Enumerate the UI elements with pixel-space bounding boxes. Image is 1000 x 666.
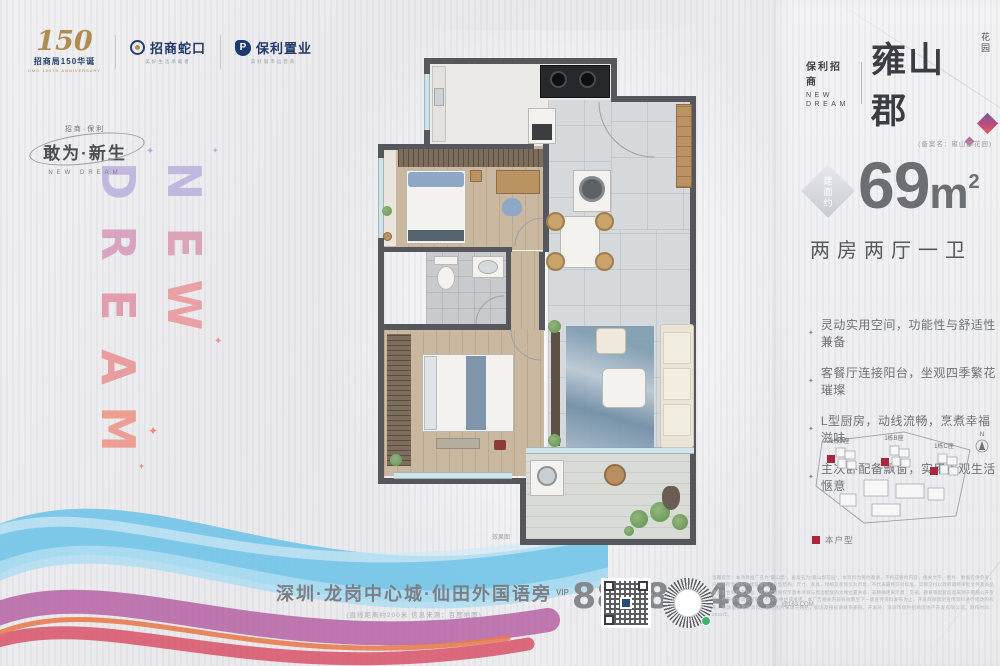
- legal-fine-print: 温馨提示：本项目推广名为“雍山郡”，备案名为“雍山郡花园”。本资料为要约邀请，不…: [712, 574, 994, 619]
- highlighted-unit: [827, 455, 835, 463]
- brand-tagline-text: 敢为·新生: [43, 144, 127, 163]
- project-brand-en: NEW DREAM: [806, 91, 852, 109]
- cmsk-slogan: 美好生活承载者: [145, 59, 191, 65]
- feature-item: ✦客餐厅连接阳台，坐观四季繁花璀璨: [808, 364, 1000, 398]
- qr-finder-icon: [604, 615, 614, 625]
- sparkle-icon: ✦: [214, 336, 222, 347]
- wechat-dot-icon: [701, 616, 711, 626]
- poster-canvas: 150 招商局150华诞 CMG 150TH ANNIVERSARY 招商蛇口 …: [0, 0, 1000, 666]
- unit-area-block: 建面约 69m2 两房两厅一卫: [806, 152, 996, 263]
- address-text: 深圳·龙岗中心城·仙田外国语旁: [276, 580, 552, 606]
- watermark-letter: A: [87, 341, 149, 393]
- qr-finder-icon: [638, 581, 648, 591]
- area-badge-label: 建面约: [806, 166, 850, 218]
- watermark-letter: M: [87, 403, 149, 455]
- project-filing-name: (备案名：雍山郡花园): [806, 138, 992, 148]
- area-badge: 建面约: [806, 160, 850, 224]
- unit-rooms-label: 两房两厅一卫: [810, 234, 996, 263]
- logo-divider: [115, 35, 116, 69]
- area-exponent: 2: [969, 171, 980, 193]
- logo-divider: [220, 35, 221, 69]
- anniversary-subtitle: CMG 150TH ANNIVERSARY: [28, 68, 101, 73]
- sparkle-icon: ✦: [146, 146, 154, 157]
- floor-plan: [378, 58, 700, 550]
- header-logos: 150 招商局150华诞 CMG 150TH ANNIVERSARY 招商蛇口 …: [28, 30, 312, 73]
- siteplan-legend: 本户型: [812, 534, 854, 546]
- qr-finder-icon: [604, 581, 614, 591]
- building-label: 1栋B座: [884, 434, 903, 442]
- area-value: 69: [858, 148, 929, 222]
- project-brand: 保利招商: [806, 58, 852, 88]
- brand-en-line: NEW: [806, 91, 852, 100]
- qr-center-badge: [674, 589, 702, 617]
- watermark-letter: R: [87, 217, 149, 269]
- watermark-letter: E: [153, 217, 215, 269]
- qr-code-square: [601, 578, 651, 628]
- highlighted-unit: [930, 467, 938, 475]
- watermark-new: N E W: [158, 150, 210, 336]
- project-divider: [861, 62, 862, 104]
- address-note: (直线距离约200米 信息来源：百度地图): [276, 609, 552, 619]
- sparkle-icon: ✦: [138, 462, 145, 471]
- anniversary-title: 招商局150华诞: [34, 56, 95, 67]
- anniversary-150-icon: 150: [36, 30, 92, 54]
- project-brand-block: 保利招商 NEW DREAM: [806, 58, 852, 109]
- area-unit: m: [929, 169, 968, 218]
- brand-tagline-en: NEW DREAM: [30, 170, 140, 176]
- building-label: 1栋C座: [934, 442, 954, 450]
- vip-label: VIP: [556, 588, 569, 597]
- poly-logo: P 保利置业 美好城市运营商: [235, 38, 312, 65]
- north-label: N: [980, 431, 985, 438]
- sparkle-icon: ✦: [212, 146, 219, 155]
- watermark-dream: D R E A M: [92, 150, 144, 460]
- qr-code-round: [663, 578, 713, 628]
- poly-p-icon: P: [235, 40, 251, 56]
- poly-name: 保利置业: [256, 38, 312, 57]
- project-header: 保利招商 NEW DREAM 雍山郡 花园 (备案名：雍山郡花园): [806, 32, 992, 148]
- brand-tagline-block: 招商·保利 敢为·新生 NEW DREAM: [30, 124, 140, 176]
- watermark-letter: W: [153, 279, 215, 331]
- floorplan-caption: 效果图: [476, 532, 526, 541]
- feature-text: 灵动实用空间，功能性与舒适性兼备: [821, 316, 1000, 350]
- highlighted-unit: [881, 458, 889, 466]
- brand-en-line: DREAM: [806, 100, 852, 109]
- legend-label: 本户型: [825, 534, 854, 546]
- brand-tagline-small: 招商·保利: [30, 124, 140, 134]
- diamond-bullet-icon: ✦: [808, 377, 814, 385]
- cmsk-name: 招商蛇口: [150, 38, 206, 57]
- watermark-letter: E: [87, 279, 149, 331]
- watermark-letter: N: [153, 155, 215, 207]
- site-plan: 1栋A座 1栋B座 1栋C座 N: [806, 424, 994, 534]
- door-swing-arcs: [378, 58, 700, 550]
- cmsk-ring-icon: [130, 40, 145, 55]
- project-name-suffix: 花园: [979, 32, 992, 54]
- legend-swatch: [812, 536, 820, 544]
- address-block: 深圳·龙岗中心城·仙田外国语旁 (直线距离约200米 信息来源：百度地图): [276, 580, 552, 619]
- cmsk-logo: 招商蛇口 美好生活承载者: [130, 38, 206, 65]
- building-label: 1栋A座: [830, 437, 849, 445]
- anniversary-logo: 150 招商局150华诞 CMG 150TH ANNIVERSARY: [28, 30, 101, 73]
- poly-slogan: 美好城市运营商: [251, 59, 297, 65]
- north-compass-icon: N: [976, 431, 988, 452]
- feature-text: 客餐厅连接阳台，坐观四季繁花璀璨: [821, 364, 1000, 398]
- project-name: 雍山郡: [871, 32, 977, 134]
- qr-center-logo: [620, 597, 632, 609]
- sparkle-icon: ✦: [148, 424, 158, 438]
- brand-tagline-main: 敢为·新生: [37, 137, 133, 166]
- feature-item: ✦灵动实用空间，功能性与舒适性兼备: [808, 316, 1000, 350]
- diamond-bullet-icon: ✦: [808, 329, 814, 337]
